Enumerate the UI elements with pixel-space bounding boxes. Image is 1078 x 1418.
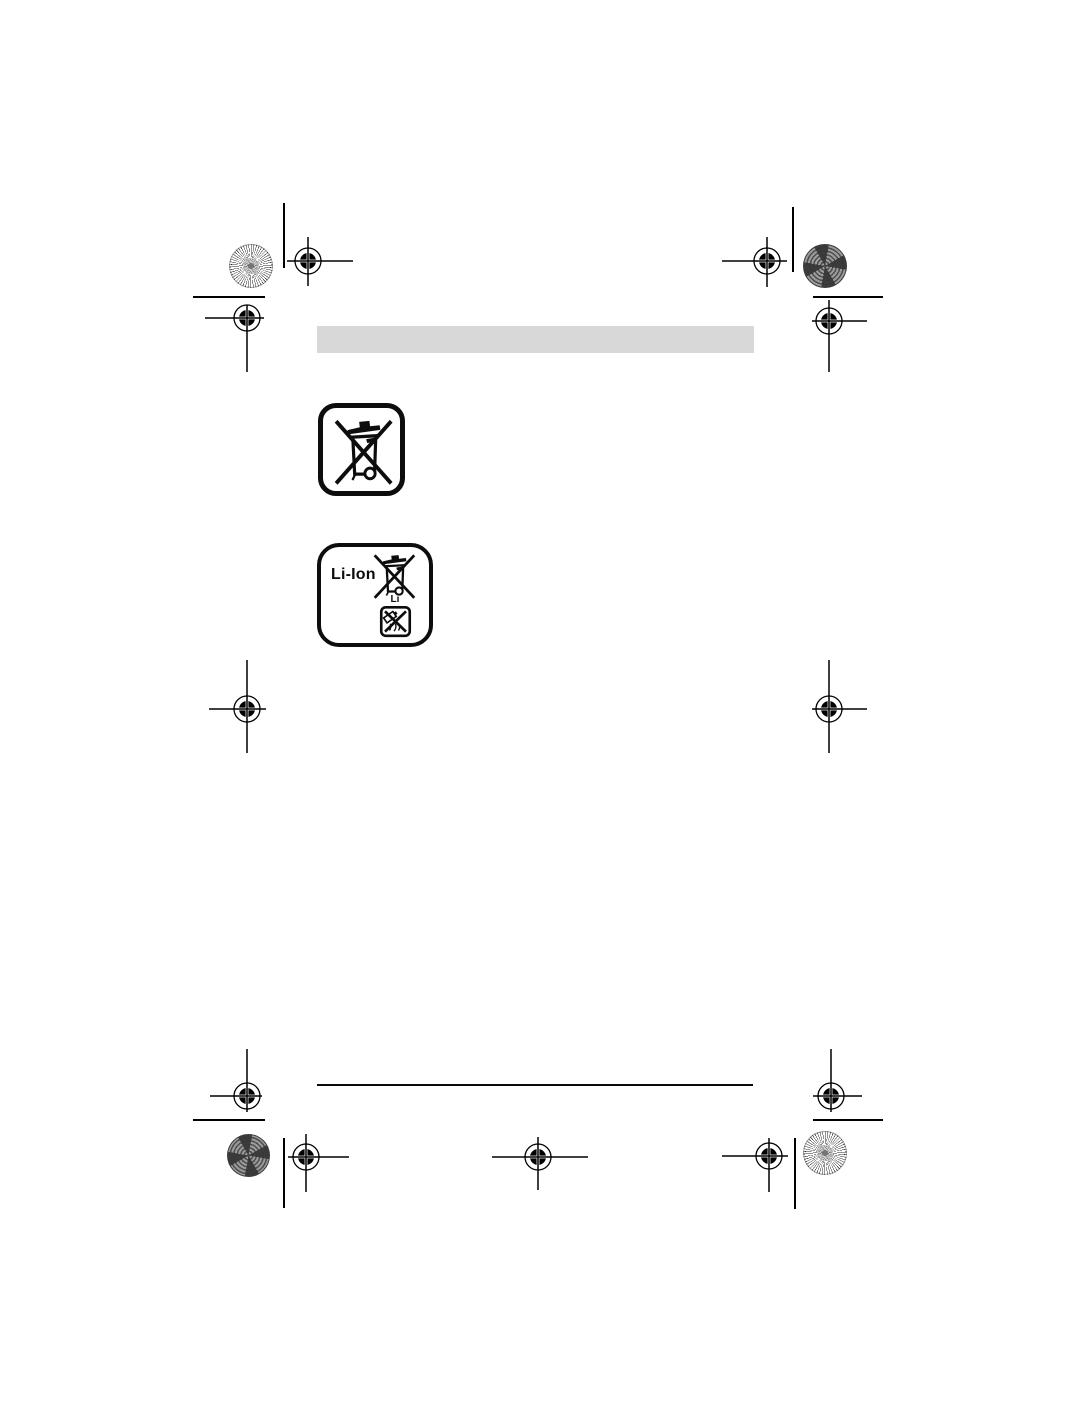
registration-crosshair-icon bbox=[182, 253, 312, 383]
trim-line bbox=[283, 203, 285, 268]
registration-crosshair-icon bbox=[764, 256, 894, 386]
trim-line bbox=[813, 296, 883, 298]
crossed-out-wheeled-bin-icon bbox=[331, 412, 395, 488]
trim-line bbox=[193, 296, 265, 298]
weee-symbol-box bbox=[318, 403, 405, 496]
registration-crosshair-icon bbox=[704, 1091, 834, 1221]
section-header-bar bbox=[317, 326, 754, 353]
trim-line bbox=[794, 1138, 796, 1209]
li-ion-label: Li-Ion bbox=[331, 566, 376, 584]
trim-line bbox=[283, 1138, 285, 1208]
registration-crosshair-icon bbox=[241, 1092, 371, 1222]
trim-line bbox=[813, 1119, 883, 1121]
footer-divider-line bbox=[317, 1084, 753, 1086]
li-chemistry-caption: Li bbox=[383, 594, 407, 605]
registration-crosshair-icon bbox=[764, 644, 894, 774]
registration-crosshair-icon bbox=[473, 1092, 603, 1222]
battery-disposal-symbol-box: Li-Ion Li bbox=[317, 543, 433, 647]
trim-line bbox=[193, 1119, 265, 1121]
registration-crosshair-icon bbox=[182, 644, 312, 774]
crossed-out-battery-fire-icon bbox=[379, 605, 412, 638]
trim-line bbox=[792, 207, 794, 272]
